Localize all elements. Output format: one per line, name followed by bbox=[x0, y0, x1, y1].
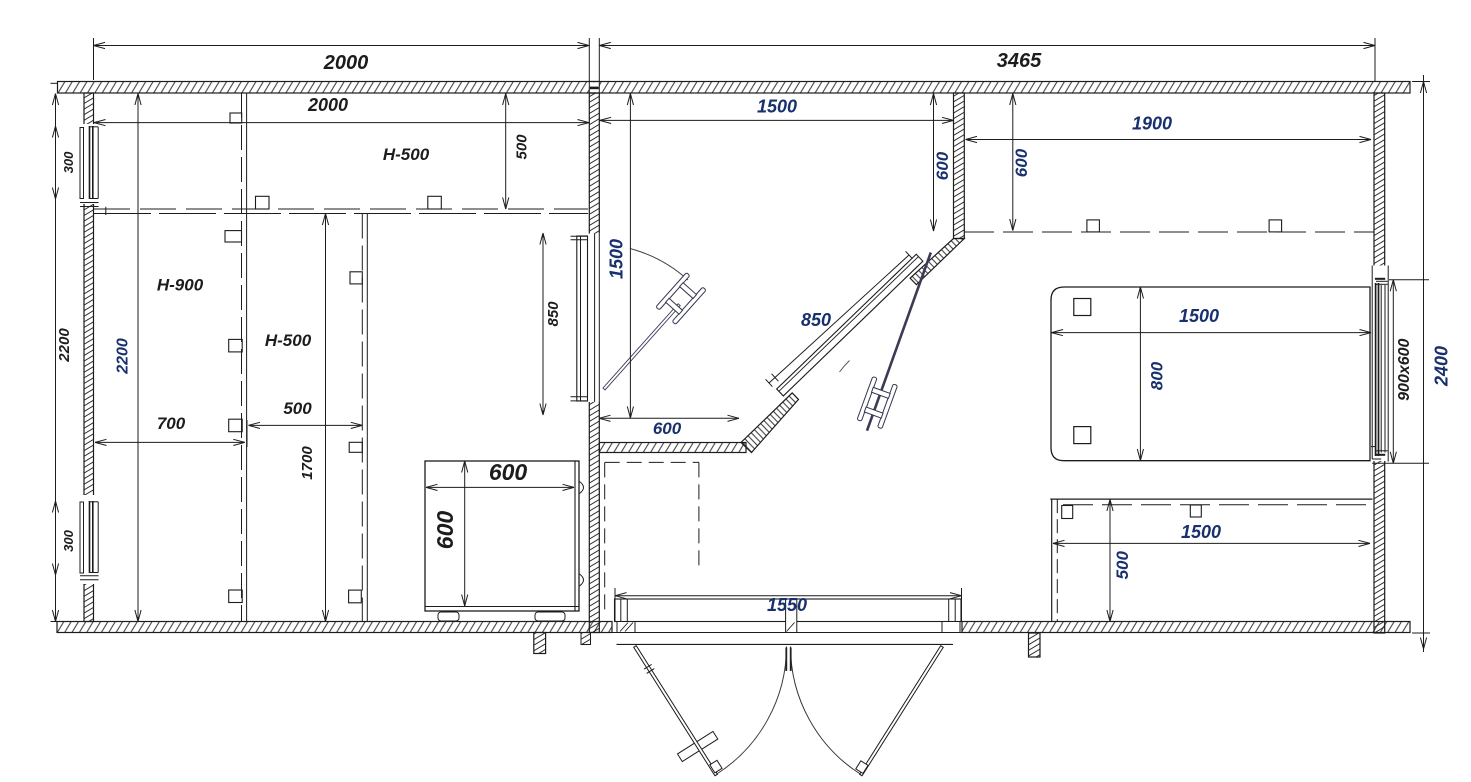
svg-text:1500: 1500 bbox=[606, 239, 626, 279]
svg-text:1500: 1500 bbox=[757, 96, 797, 116]
svg-text:2200: 2200 bbox=[115, 338, 132, 375]
svg-text:600: 600 bbox=[489, 459, 528, 485]
svg-text:600: 600 bbox=[1012, 148, 1031, 177]
svg-text:1700: 1700 bbox=[299, 446, 316, 480]
svg-text:500: 500 bbox=[283, 399, 312, 418]
svg-text:1500: 1500 bbox=[1179, 306, 1219, 326]
svg-text:2200: 2200 bbox=[56, 328, 73, 363]
svg-text:900х600: 900х600 bbox=[1396, 338, 1413, 400]
svg-text:1500: 1500 bbox=[1181, 522, 1221, 542]
svg-text:H-500: H-500 bbox=[265, 331, 312, 350]
svg-text:1550: 1550 bbox=[767, 595, 807, 615]
svg-text:3465: 3465 bbox=[997, 50, 1042, 72]
svg-text:2000: 2000 bbox=[323, 52, 369, 74]
svg-text:500: 500 bbox=[1113, 550, 1132, 579]
svg-text:1900: 1900 bbox=[1132, 113, 1172, 133]
svg-text:600: 600 bbox=[653, 419, 682, 438]
svg-text:H-900: H-900 bbox=[157, 275, 204, 294]
svg-text:500: 500 bbox=[513, 134, 530, 160]
svg-text:600: 600 bbox=[933, 151, 952, 180]
svg-text:800: 800 bbox=[1147, 361, 1166, 390]
svg-text:600: 600 bbox=[432, 511, 458, 550]
svg-text:300: 300 bbox=[61, 151, 76, 173]
svg-text:850: 850 bbox=[801, 310, 831, 330]
svg-text:300: 300 bbox=[61, 529, 76, 551]
svg-text:H-500: H-500 bbox=[383, 145, 430, 164]
svg-text:700: 700 bbox=[157, 414, 186, 433]
svg-text:2400: 2400 bbox=[1431, 346, 1451, 387]
svg-text:2000: 2000 bbox=[307, 95, 348, 115]
svg-text:850: 850 bbox=[545, 301, 562, 327]
